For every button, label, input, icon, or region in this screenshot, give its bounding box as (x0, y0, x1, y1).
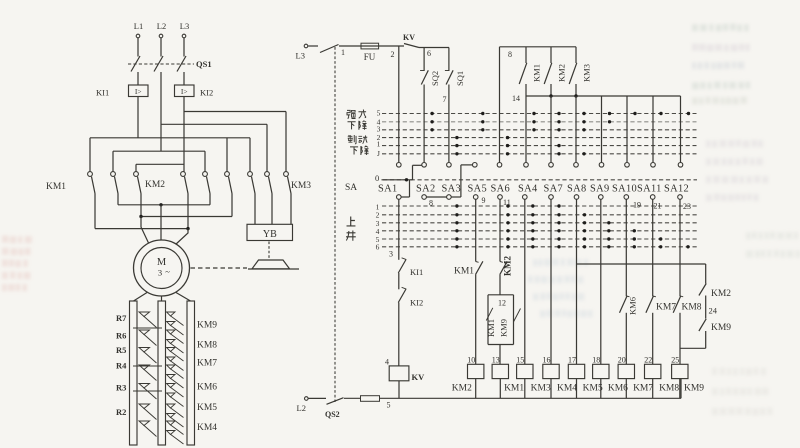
svg-text:SA7: SA7 (544, 184, 564, 195)
svg-text:R4: R4 (116, 361, 127, 371)
svg-text:KM7: KM7 (197, 359, 217, 369)
svg-text:KM9: KM9 (197, 321, 217, 331)
svg-text:3: 3 (158, 268, 162, 278)
svg-text:R3: R3 (116, 383, 126, 393)
svg-text:2: 2 (391, 50, 395, 59)
svg-text:SA4: SA4 (518, 184, 538, 195)
svg-text:L1: L1 (134, 21, 143, 31)
svg-text:7: 7 (443, 95, 447, 104)
svg-text:KM9: KM9 (684, 384, 704, 394)
svg-text:13: 13 (492, 356, 500, 365)
svg-text:SA3: SA3 (442, 184, 462, 195)
svg-text:L2: L2 (157, 21, 166, 31)
svg-text:SA6: SA6 (491, 184, 511, 195)
svg-text:KM8: KM8 (659, 384, 679, 394)
svg-text:SA5: SA5 (468, 184, 488, 195)
svg-text:18: 18 (592, 356, 600, 365)
svg-text:KM6: KM6 (628, 297, 638, 315)
svg-text:20: 20 (618, 356, 626, 365)
svg-text:KM1: KM1 (454, 267, 474, 277)
svg-text:KM6: KM6 (197, 383, 217, 393)
svg-text:KM4: KM4 (557, 384, 577, 394)
svg-text:15: 15 (516, 356, 524, 365)
svg-text:25: 25 (671, 356, 679, 365)
svg-text:3: 3 (389, 250, 393, 259)
svg-text:16: 16 (543, 356, 551, 365)
svg-text:1: 1 (341, 48, 345, 57)
svg-text:9: 9 (482, 196, 486, 205)
svg-text:QS2: QS2 (325, 410, 340, 419)
svg-text:L3: L3 (180, 21, 189, 31)
svg-text:KM1: KM1 (532, 64, 542, 82)
svg-text:R6: R6 (116, 331, 126, 341)
svg-text:FU: FU (364, 52, 376, 62)
svg-text:KM5: KM5 (583, 384, 603, 394)
svg-text:10: 10 (467, 356, 475, 365)
svg-text:L2: L2 (297, 403, 306, 413)
svg-text:KM4: KM4 (197, 423, 217, 433)
svg-text:R7: R7 (116, 313, 127, 323)
svg-text:SQ1: SQ1 (455, 71, 465, 86)
svg-text:R5: R5 (116, 345, 126, 355)
svg-text:KM7: KM7 (656, 303, 676, 313)
svg-text:KM2: KM2 (145, 180, 165, 190)
svg-text:SA2: SA2 (416, 184, 436, 195)
svg-text:5: 5 (387, 401, 391, 410)
svg-text:KI1: KI1 (96, 88, 109, 98)
svg-text:24: 24 (709, 306, 718, 316)
svg-text:KM2: KM2 (711, 289, 731, 299)
svg-text:KM8: KM8 (682, 303, 702, 313)
svg-text:6: 6 (376, 243, 380, 252)
svg-text:12: 12 (498, 299, 506, 308)
svg-text:14: 14 (512, 94, 520, 103)
svg-text:SA1: SA1 (378, 184, 398, 195)
svg-text:SQ2: SQ2 (430, 71, 440, 86)
svg-text:KM2: KM2 (557, 64, 567, 82)
svg-text:L3: L3 (296, 51, 305, 61)
svg-text:KM1: KM1 (46, 182, 66, 192)
svg-text:0: 0 (375, 173, 379, 183)
svg-text:SA10: SA10 (612, 184, 637, 195)
svg-text:8: 8 (429, 199, 433, 208)
svg-text:R2: R2 (116, 407, 126, 417)
svg-text:KM7: KM7 (633, 384, 653, 394)
svg-text:KM3: KM3 (531, 384, 551, 394)
svg-text:KM3: KM3 (291, 181, 311, 191)
svg-text:8: 8 (508, 50, 512, 59)
svg-text:KM6: KM6 (608, 384, 628, 394)
svg-text:KM3: KM3 (582, 64, 592, 82)
svg-text:KM5: KM5 (197, 403, 217, 413)
svg-text:QS1: QS1 (196, 59, 212, 69)
svg-text:SA: SA (345, 183, 357, 193)
svg-text:KM8: KM8 (197, 341, 217, 351)
svg-text:22: 22 (644, 356, 652, 365)
svg-text:5: 5 (377, 109, 381, 118)
svg-text:SA9: SA9 (590, 184, 610, 195)
svg-text:SA8: SA8 (567, 184, 587, 195)
svg-text:KM9: KM9 (711, 323, 731, 333)
svg-text:KM1: KM1 (486, 319, 496, 337)
svg-text:19: 19 (633, 201, 641, 210)
svg-text:KM9: KM9 (499, 319, 509, 337)
svg-text:KM2: KM2 (452, 384, 472, 394)
svg-text:SA12: SA12 (664, 184, 689, 195)
svg-text:21: 21 (654, 202, 662, 211)
svg-text:KV: KV (403, 33, 415, 42)
svg-text:KM2: KM2 (503, 256, 513, 276)
svg-text:6: 6 (427, 49, 431, 58)
svg-text:KV: KV (412, 372, 426, 382)
svg-text:J: J (377, 149, 380, 158)
svg-text:KM1: KM1 (504, 384, 524, 394)
svg-text:KI2: KI2 (200, 88, 213, 98)
svg-text:KI1: KI1 (410, 267, 423, 277)
svg-text:~: ~ (165, 267, 170, 277)
svg-text:17: 17 (568, 356, 576, 365)
svg-text:SA11: SA11 (637, 184, 662, 195)
svg-text:KI2: KI2 (410, 298, 423, 308)
svg-text:I>: I> (181, 87, 188, 96)
svg-text:YB: YB (263, 229, 277, 240)
svg-text:1: 1 (377, 139, 381, 148)
svg-text:4: 4 (385, 358, 389, 367)
svg-text:23: 23 (683, 202, 691, 211)
svg-text:I>: I> (135, 87, 142, 96)
